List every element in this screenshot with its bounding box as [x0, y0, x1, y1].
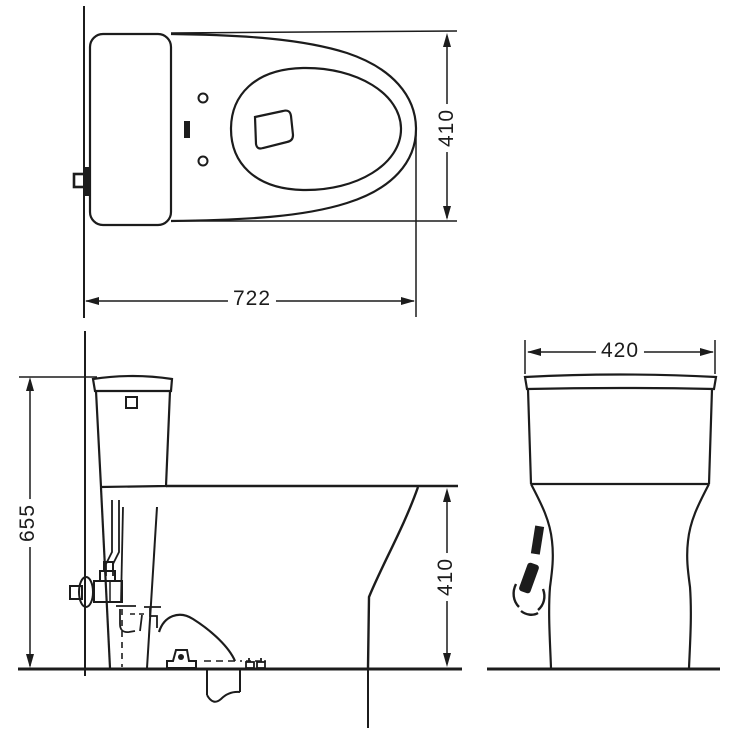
bowl-front-profile	[368, 487, 418, 668]
supply-fixture-icon	[74, 167, 87, 196]
front-view	[487, 340, 720, 669]
arrow-down-icon	[443, 653, 451, 667]
dim-label-total-height: 655	[17, 499, 39, 547]
bowl-right-profile	[687, 484, 709, 668]
arrow-up-icon	[443, 33, 451, 47]
extension-line-top	[171, 31, 457, 33]
arrow-right-icon	[401, 297, 415, 305]
top-view	[74, 6, 457, 318]
arrow-left-icon	[85, 297, 99, 305]
tank-lid-outline	[525, 375, 716, 390]
dim-label-bowl-height: 410	[435, 553, 457, 601]
dim-label-top-width: 722	[228, 288, 276, 310]
dim-label-top-depth: 410	[436, 104, 458, 152]
spray-nozzle-icon	[514, 526, 545, 615]
arrow-up-icon	[26, 377, 34, 391]
bowl-rear-profile	[101, 488, 110, 668]
drawing-canvas	[0, 0, 740, 740]
dim-label-front-width: 420	[596, 340, 644, 362]
shutoff-valve-icon	[70, 562, 122, 607]
flush-slot	[184, 121, 190, 138]
water-spot-outline	[255, 111, 293, 149]
trap-elbow	[159, 615, 235, 661]
technical-drawing: 722 410 655 410 420	[0, 0, 740, 740]
hinge-hole-bottom	[199, 157, 208, 166]
floor-fixing-icon	[246, 658, 265, 668]
tank-lid-outline	[93, 376, 172, 391]
arrow-down-icon	[443, 206, 451, 220]
tank-outline	[90, 34, 171, 225]
floor-bolt-icon	[167, 650, 196, 668]
tank-body-outline	[96, 391, 170, 487]
side-view	[18, 331, 462, 728]
arrow-left-icon	[527, 348, 541, 356]
trap-outline	[116, 507, 235, 668]
seat-outline	[171, 34, 416, 221]
arrow-up-icon	[443, 488, 451, 502]
arrow-right-icon	[700, 348, 714, 356]
tank-body-outline	[528, 389, 712, 484]
arrow-down-icon	[26, 654, 34, 668]
flush-button	[126, 397, 137, 408]
hinge-hole-top	[199, 94, 208, 103]
break-line	[207, 692, 240, 702]
